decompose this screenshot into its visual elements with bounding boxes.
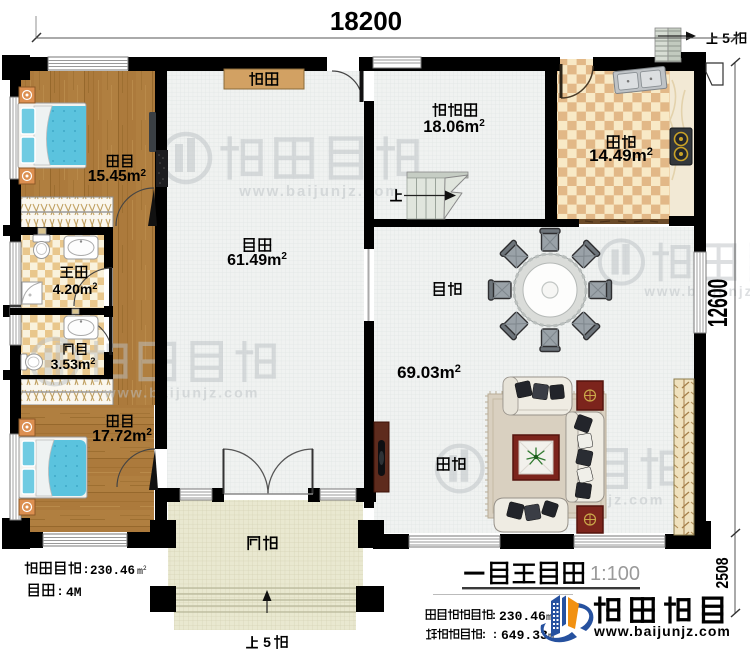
svg-text:61.49m2: 61.49m2 bbox=[227, 251, 287, 269]
svg-text:4M: 4M bbox=[66, 585, 82, 600]
svg-text:www.baijunjz.com: www.baijunjz.com bbox=[238, 183, 400, 200]
svg-text:4.20m2: 4.20m2 bbox=[53, 281, 98, 297]
svg-text:230.46: 230.46 bbox=[499, 609, 546, 624]
svg-text::: : bbox=[58, 583, 62, 598]
svg-text:230.46: 230.46 bbox=[90, 564, 135, 578]
svg-text:14.49m2: 14.49m2 bbox=[589, 146, 653, 165]
svg-text:17.72m2: 17.72m2 bbox=[92, 427, 152, 445]
svg-text:5: 5 bbox=[263, 634, 271, 650]
svg-text:3.53m2: 3.53m2 bbox=[51, 356, 96, 372]
svg-text::: : bbox=[84, 561, 88, 576]
svg-text::: : bbox=[492, 608, 496, 622]
svg-text:18200: 18200 bbox=[330, 6, 402, 36]
svg-text::: : bbox=[482, 627, 486, 641]
svg-text::: : bbox=[493, 627, 497, 641]
svg-text:www.baijunjz.com: www.baijunjz.com bbox=[104, 386, 260, 402]
svg-text:15.45m2: 15.45m2 bbox=[88, 168, 147, 185]
svg-text:www.baijunjz.com: www.baijunjz.com bbox=[593, 623, 731, 639]
svg-text:12600: 12600 bbox=[702, 279, 733, 327]
svg-text:69.03m2: 69.03m2 bbox=[397, 363, 461, 382]
svg-text:18.06m2: 18.06m2 bbox=[423, 118, 485, 136]
svg-text:2508: 2508 bbox=[712, 557, 732, 588]
svg-text:1:100: 1:100 bbox=[590, 563, 640, 585]
